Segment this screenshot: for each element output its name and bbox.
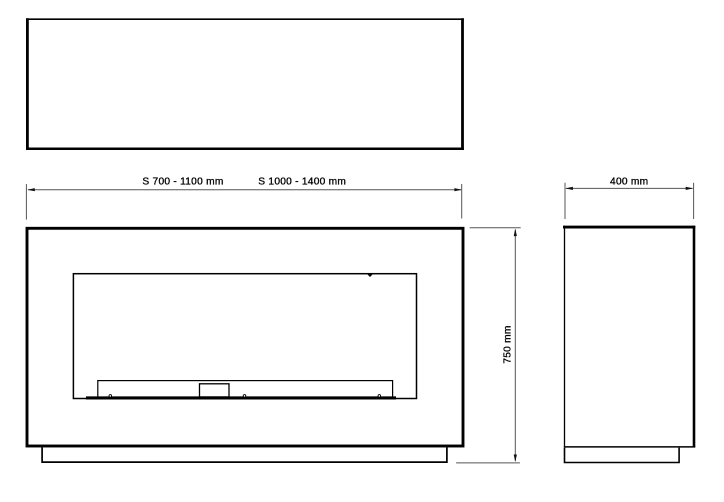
svg-text:S 1000 - 1400 mm: S 1000 - 1400 mm: [258, 177, 346, 188]
svg-text:750 mm: 750 mm: [503, 325, 514, 363]
svg-text:400 mm: 400 mm: [610, 177, 648, 188]
svg-text:S 700 - 1100 mm: S 700 - 1100 mm: [142, 177, 223, 188]
